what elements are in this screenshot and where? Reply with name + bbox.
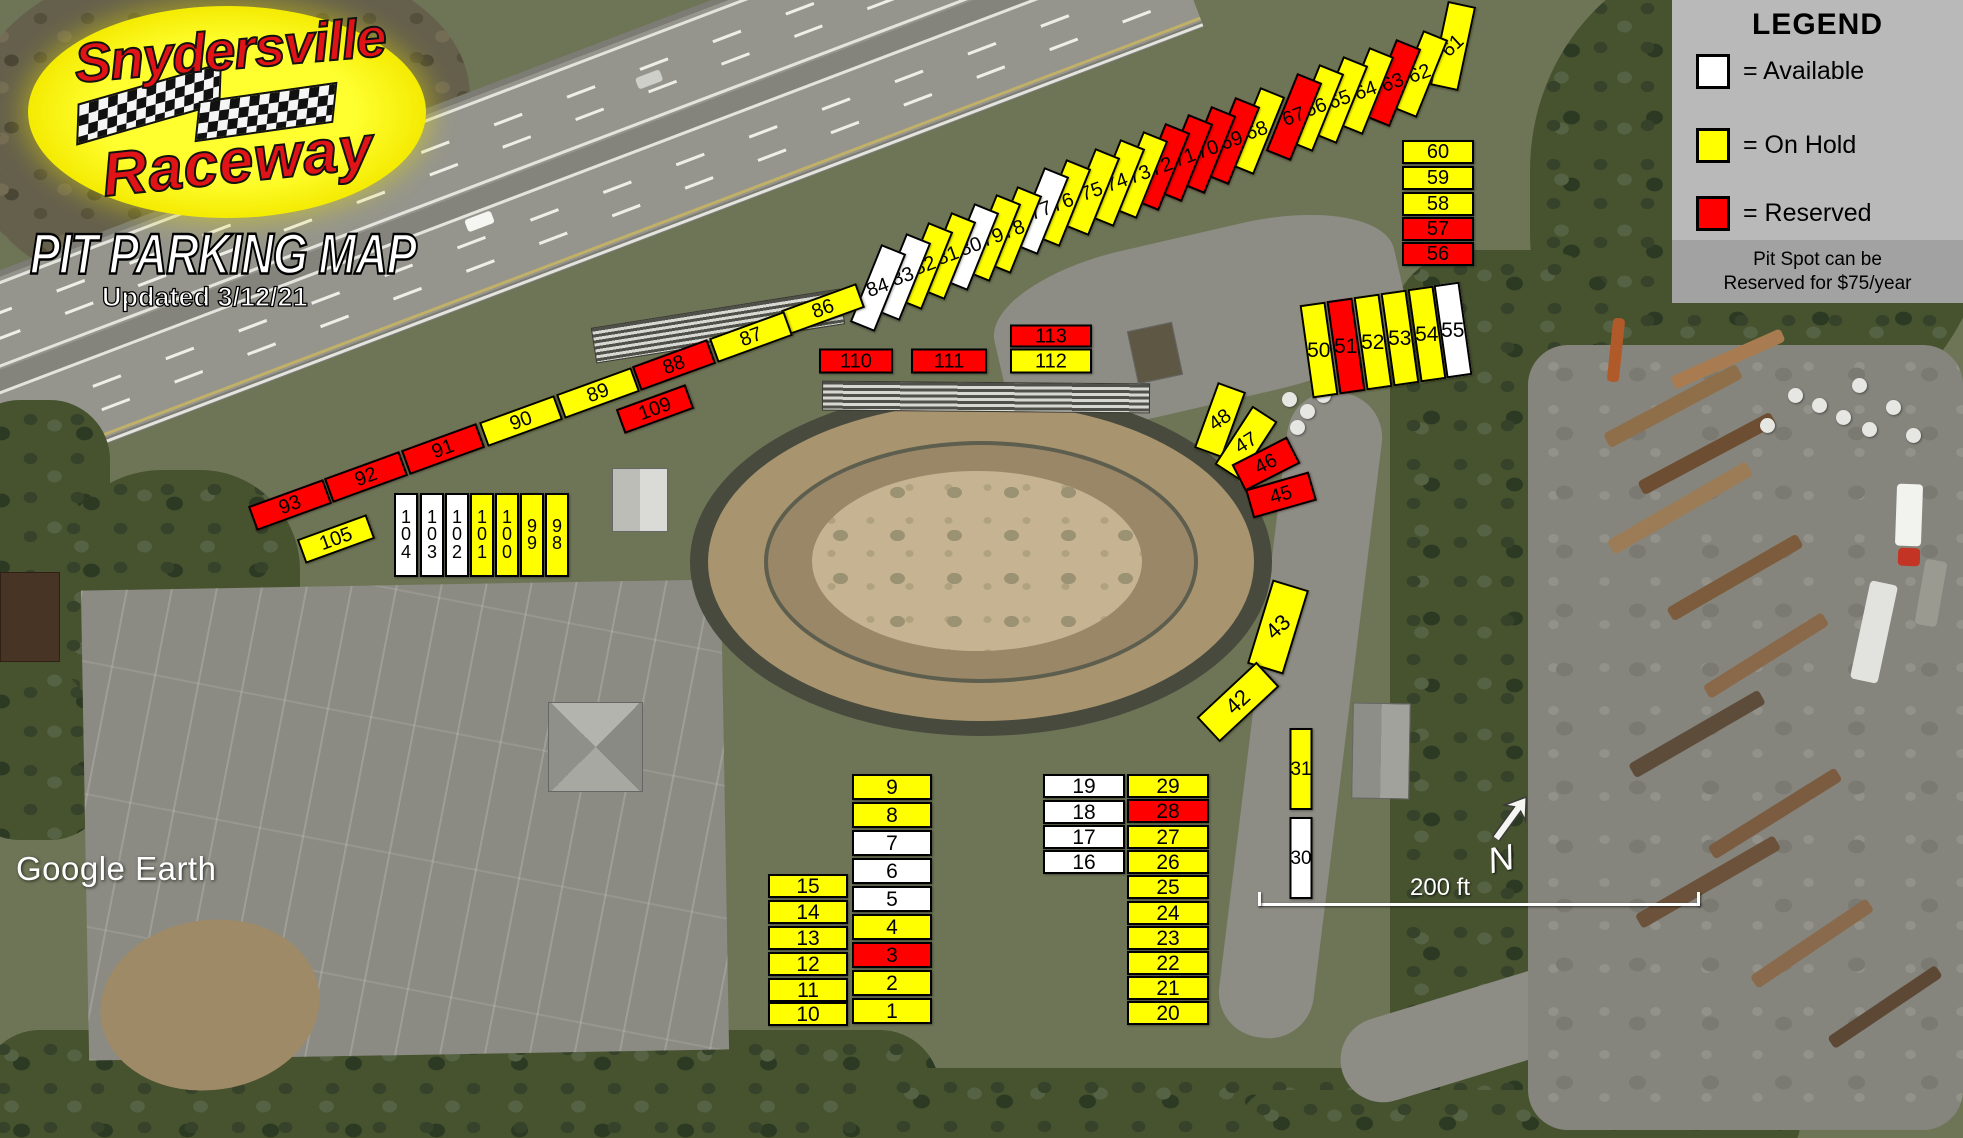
pit-spot-14: 14: [768, 900, 848, 924]
pit-spot-24: 24: [1127, 901, 1209, 925]
pit-spot-12: 12: [768, 952, 848, 976]
legend-row-reserved: = Reserved: [1696, 196, 1872, 231]
pit-spot-59: 59: [1402, 166, 1474, 190]
on-hold-swatch: [1696, 128, 1730, 163]
pit-spot-20: 20: [1127, 1001, 1209, 1025]
pit-spot-22: 22: [1127, 951, 1209, 975]
legend-row-available: = Available: [1696, 54, 1864, 89]
pit-spot-88: 88: [632, 339, 716, 391]
pit-spot-18: 18: [1043, 800, 1125, 824]
pit-spot-13: 13: [768, 926, 848, 950]
pit-spot-25: 25: [1127, 875, 1209, 899]
pit-parking-map: 6162636465666768697071727374757677787980…: [0, 0, 1963, 1138]
pit-spot-60: 60: [1402, 140, 1474, 164]
page-title: PIT PARKING MAP: [30, 220, 416, 287]
pit-spot-10: 10: [768, 1002, 848, 1026]
pit-spot-104: 1 0 4: [394, 493, 418, 577]
pit-spot-113: 113: [1010, 325, 1092, 348]
pit-spot-110: 110: [819, 349, 893, 374]
updated-date: Updated 3/12/21: [102, 282, 308, 313]
pit-spot-2: 2: [852, 970, 932, 996]
pit-spot-23: 23: [1127, 926, 1209, 950]
pit-spot-5: 5: [852, 886, 932, 912]
pit-spot-42: 42: [1196, 662, 1279, 743]
pit-spot-16: 16: [1043, 850, 1125, 874]
scale-line: [1258, 903, 1700, 906]
pit-spot-7: 7: [852, 830, 932, 856]
pit-spot-56: 56: [1402, 242, 1474, 266]
google-earth-attribution: Google Earth: [16, 850, 216, 888]
available-swatch: [1696, 54, 1730, 89]
legend-title: LEGEND: [1672, 8, 1963, 42]
reserved-swatch: [1696, 196, 1730, 231]
pit-spot-28: 28: [1127, 799, 1209, 823]
pit-spot-105: 105: [297, 514, 375, 564]
pit-spot-15: 15: [768, 874, 848, 898]
legend-label-reserved: = Reserved: [1743, 199, 1872, 228]
pit-spot-30: 30: [1290, 817, 1313, 899]
pit-spot-4: 4: [852, 914, 932, 940]
pit-spot-93: 93: [248, 479, 332, 531]
pit-spot-98: 9 8: [545, 493, 569, 577]
pit-spot-1: 1: [852, 998, 932, 1024]
pit-spot-31: 31: [1290, 728, 1313, 810]
pit-spot-26: 26: [1127, 850, 1209, 874]
pit-spot-29: 29: [1127, 774, 1209, 798]
legend-note-line2: Reserved for $75/year: [1672, 272, 1963, 296]
pit-spot-102: 1 0 2: [445, 493, 469, 577]
pit-spot-103: 1 0 3: [420, 493, 444, 577]
pit-spot-8: 8: [852, 802, 932, 828]
scale-label: 200 ft: [1380, 874, 1500, 902]
pit-spot-27: 27: [1127, 825, 1209, 849]
pit-spot-11: 11: [768, 978, 848, 1002]
pit-spot-100: 1 0 0: [495, 493, 519, 577]
pit-spot-90: 90: [479, 395, 563, 447]
pit-spot-58: 58: [1402, 192, 1474, 216]
pit-spot-21: 21: [1127, 976, 1209, 1000]
pit-spot-6: 6: [852, 858, 932, 884]
legend-note: Pit Spot can be Reserved for $75/year: [1672, 240, 1963, 303]
legend-label-on-hold: = On Hold: [1743, 131, 1856, 160]
pit-spot-43: 43: [1247, 579, 1309, 674]
pit-spot-17: 17: [1043, 825, 1125, 849]
pit-spot-9: 9: [852, 774, 932, 800]
pit-spot-87: 87: [709, 311, 793, 363]
legend-label-available: = Available: [1743, 57, 1864, 86]
pit-spot-112: 112: [1010, 349, 1092, 374]
pit-spot-3: 3: [852, 942, 932, 968]
pit-spot-19: 19: [1043, 774, 1125, 798]
legend-row-on-hold: = On Hold: [1696, 128, 1856, 163]
pit-spot-101: 1 0 1: [470, 493, 494, 577]
pit-spot-111: 111: [911, 349, 987, 374]
legend-note-line1: Pit Spot can be: [1672, 248, 1963, 272]
pit-spot-86: 86: [781, 283, 865, 335]
legend-panel: LEGEND = Available = On Hold = Reserved …: [1672, 0, 1963, 303]
pit-spot-99: 9 9: [520, 493, 544, 577]
north-arrow-icon: N: [1494, 792, 1528, 849]
pit-spot-57: 57: [1402, 217, 1474, 241]
pit-spot-91: 91: [401, 423, 485, 475]
